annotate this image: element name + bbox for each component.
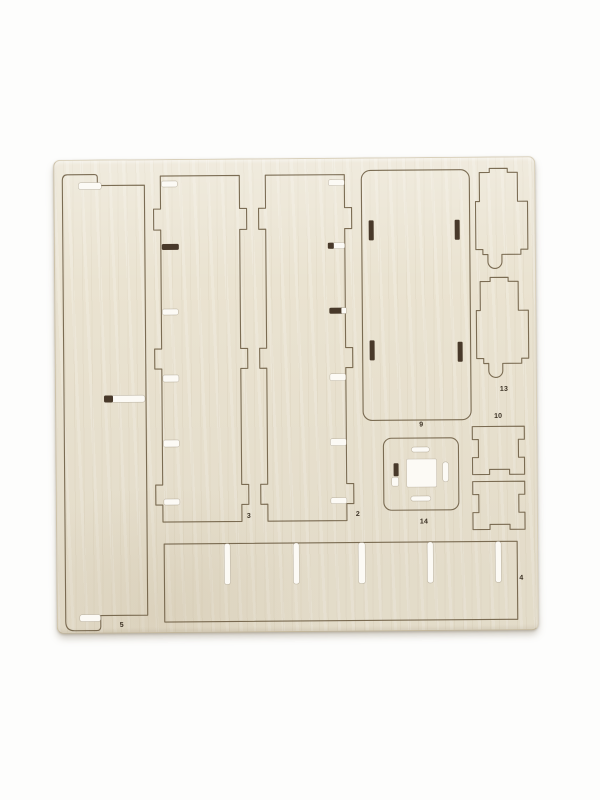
slot [80, 615, 101, 622]
piece-10b-outline [473, 481, 525, 529]
slot [358, 542, 365, 583]
slot [411, 496, 431, 501]
slot [427, 542, 433, 583]
piece-number-3: 3 [247, 513, 251, 520]
slot [111, 395, 145, 402]
plywood-sheet: 5 3 2 9 14 13 10 4 [53, 156, 539, 634]
slot [293, 543, 299, 584]
slot [411, 447, 429, 452]
slot [163, 375, 179, 382]
piece-number-5: 5 [120, 622, 124, 629]
piece-number-13: 13 [500, 386, 508, 393]
slot [162, 309, 178, 315]
slot [224, 544, 230, 585]
slot [161, 181, 177, 187]
piece-4-slots [224, 541, 501, 584]
slot [443, 462, 449, 482]
laser-cut-pattern [54, 157, 538, 633]
piece-9-outline [361, 170, 471, 421]
slot [330, 374, 346, 381]
center-hole [407, 459, 437, 487]
piece-14-slots [391, 447, 448, 501]
slot [331, 498, 347, 504]
piece-5-slots [76, 182, 146, 622]
slot [162, 244, 179, 250]
piece-number-10: 10 [494, 413, 502, 420]
piece-3-slots [161, 181, 181, 505]
piece-13a-outline [475, 168, 528, 268]
slot [394, 463, 399, 476]
piece-number-2: 2 [356, 511, 360, 518]
piece-10a-outline [472, 426, 524, 474]
piece-2-outline [258, 175, 354, 522]
slot [341, 308, 346, 314]
piece-13b-outline [476, 277, 529, 377]
piece-number-4: 4 [519, 575, 523, 582]
slot [455, 220, 460, 240]
slot [104, 395, 113, 402]
piece-number-14: 14 [420, 518, 428, 525]
piece-4-outline [164, 541, 518, 622]
slot [328, 243, 334, 249]
product-photo: 5 3 2 9 14 13 10 4 [0, 0, 600, 800]
slot [330, 439, 346, 446]
slot [328, 180, 344, 186]
slot [392, 477, 399, 486]
piece-9-slots [369, 220, 463, 363]
slot [458, 342, 463, 362]
slot [163, 440, 179, 447]
slot [369, 220, 374, 240]
slot [495, 541, 501, 582]
slot [370, 340, 375, 360]
piece-number-9: 9 [419, 422, 423, 429]
slot [164, 499, 180, 505]
slot [78, 183, 101, 190]
piece-3-outline [153, 175, 249, 522]
